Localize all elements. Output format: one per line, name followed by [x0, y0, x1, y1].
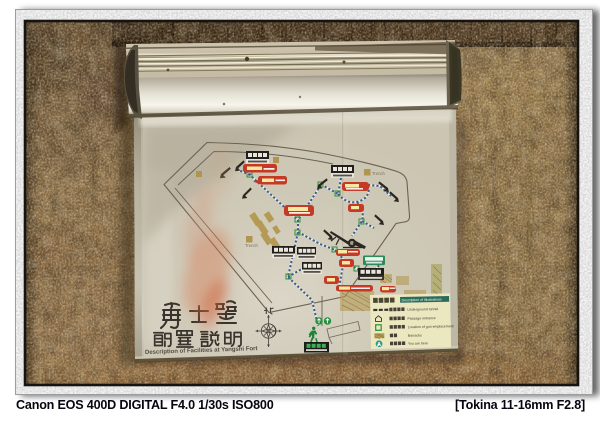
svg-text:Trench: Trench	[245, 243, 259, 248]
svg-text:[Tokina 11-16mm F2.8]: [Tokina 11-16mm F2.8]	[455, 398, 585, 412]
svg-text:Trench: Trench	[372, 171, 386, 176]
svg-text:Underground tunnel: Underground tunnel	[407, 307, 438, 312]
svg-text:You are here: You are here	[408, 341, 428, 345]
svg-text:Barracks: Barracks	[408, 333, 422, 337]
svg-text:Canon EOS 400D DIGITAL F4.0 1/: Canon EOS 400D DIGITAL F4.0 1/30s ISO800	[16, 398, 274, 412]
svg-text:Description of Illustrations: Description of Illustrations	[402, 297, 442, 302]
svg-text:Passage entrance: Passage entrance	[407, 316, 435, 321]
